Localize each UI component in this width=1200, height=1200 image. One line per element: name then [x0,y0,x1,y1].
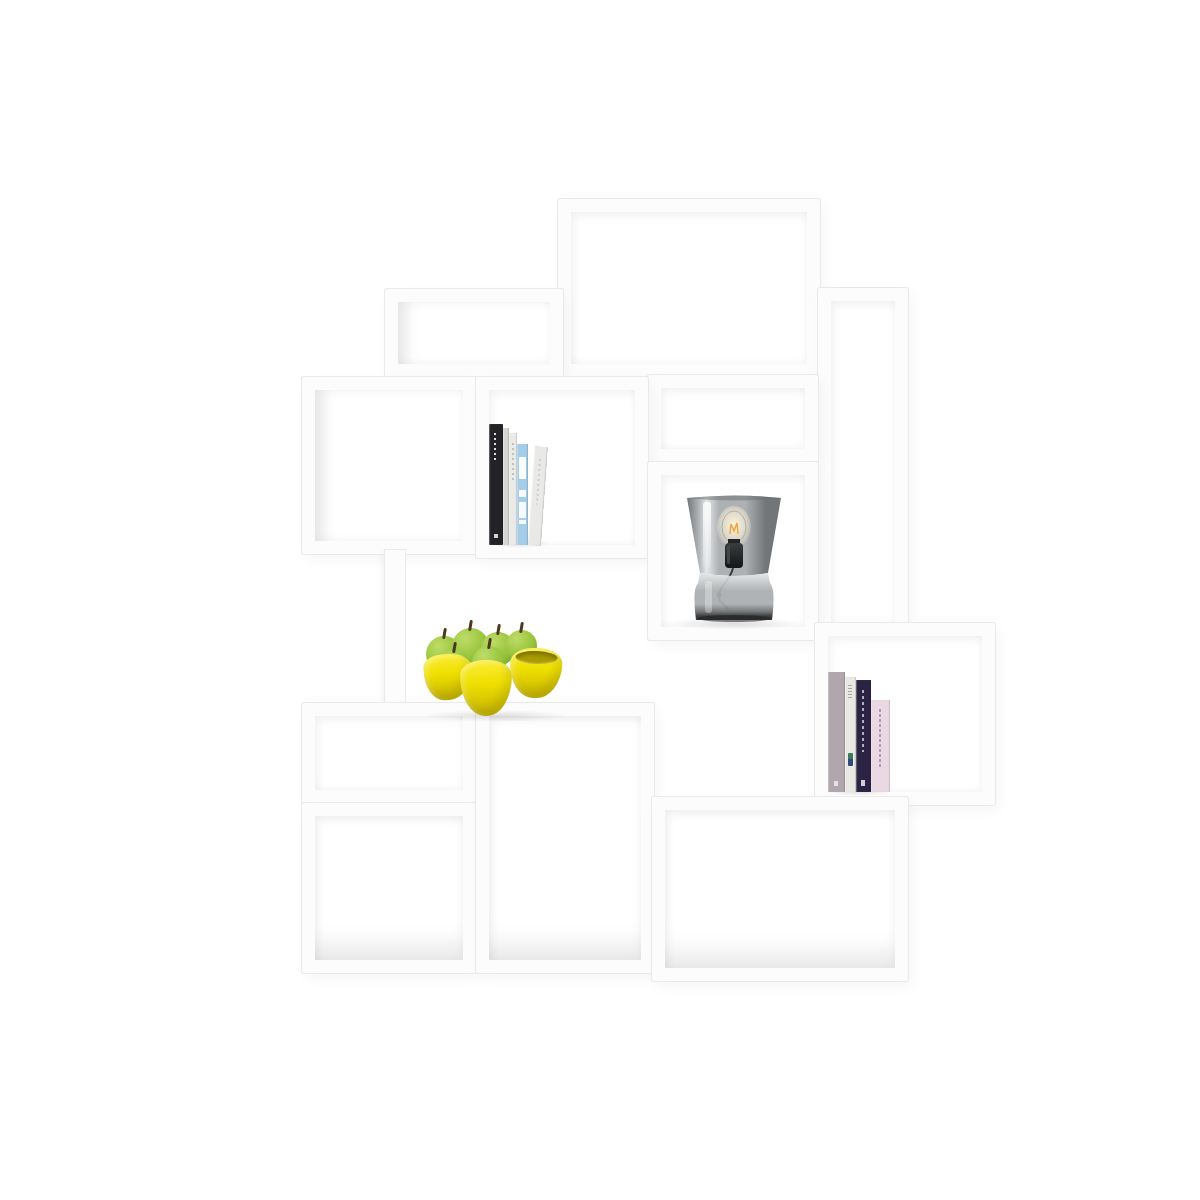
shelf-cavity [661,388,805,449]
shelf-module-middle-right-half [648,375,818,462]
shelf-cavity [398,302,550,364]
shelf-cavity [571,212,807,364]
shelf-module-bottom-middle [476,703,654,973]
bowl-rim-opening [515,650,557,664]
right-books-group [828,672,890,792]
lamp-shade-highlight [703,502,711,568]
product-photo-shelving-unit [0,0,1200,1200]
fruit-bowl-group [424,624,564,720]
shelf-cavity [315,716,463,790]
shelf-support-panel [385,550,405,706]
bowl-lobe-center [460,660,512,716]
shelf-cavity [831,301,895,627]
shelf-module-bottom-left [302,803,476,973]
shelf-module-right-tall [818,288,908,640]
table-lamp [674,493,794,627]
shelf-cavity [315,390,463,541]
shelf-module-bottom-right [652,797,908,981]
book-spine-white [509,433,517,545]
left-books-group [489,422,547,545]
shelf-module-upper-left-half [385,289,563,377]
shelf-cavity [489,716,641,960]
book-spine-dark-purple [856,680,871,792]
book-spine-white-figure [845,677,856,792]
book-spine-lightblue [517,444,528,545]
bowl-lobe-right [509,647,563,699]
shelf-cavity [315,816,463,960]
book-spine-pale-pink [871,700,890,792]
book-spine-black [489,424,503,545]
lamp-base-highlight [705,581,712,613]
book-spine-white-tilted [528,446,548,546]
shelf-cavity [665,810,895,968]
shelf-module-middle-left [302,377,476,554]
lamp-socket-highlight [727,545,730,564]
book-spine-mauve [828,672,845,792]
lamp-base-bottom [697,615,771,622]
shelf-module-top-large [558,199,820,377]
